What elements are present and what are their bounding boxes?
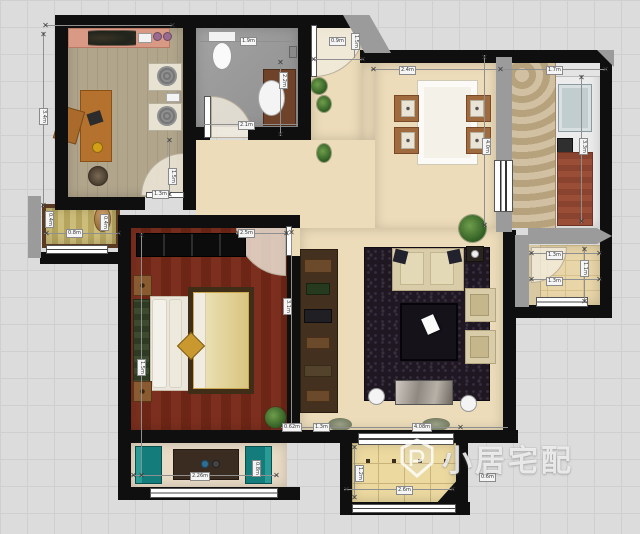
dimension-label: 3.1m [283, 298, 292, 315]
media-cabinet-item [304, 365, 332, 377]
dimension-tick-icon [137, 471, 146, 480]
dimension-tick-icon [580, 297, 589, 306]
living-balcony-window-bottom [352, 504, 456, 513]
dimension-label: 0.9m [329, 37, 346, 46]
wall-bedroom-top [118, 215, 300, 228]
dimension-tick-icon [129, 471, 138, 480]
kitchen-island-counter [557, 152, 593, 226]
dimension-label: 0.62m [282, 423, 302, 432]
dimension-line [141, 233, 142, 477]
dimension-label: 3.3m [579, 138, 588, 155]
tile-accent [366, 459, 370, 463]
wall-study-left [55, 15, 68, 210]
wall-study-bottom [55, 197, 145, 210]
dimension-line [529, 279, 601, 280]
dimension-label: 1.5m [137, 359, 146, 376]
dimension-label: 3.4m [39, 108, 48, 125]
dimension-label: 1.7m [546, 66, 563, 75]
dimension-tick-icon [272, 471, 281, 480]
dimension-label: 2.6m [396, 486, 413, 495]
dimension-tick-icon [42, 229, 51, 238]
shelf-plate [163, 32, 172, 41]
dining-chair-seat [470, 100, 484, 117]
dimension-label: 1.5m [168, 168, 177, 185]
wall-right-balcony-left [515, 235, 529, 307]
dimension-tick-icon [350, 493, 359, 502]
guest-chair-cushion [157, 66, 177, 86]
dimension-tick-icon [527, 249, 536, 258]
shelf-plate [153, 32, 162, 41]
armchair-cushion [470, 294, 489, 316]
floor-plan: 0.9m1.5m2.4m1.7m1.9m2.1m2.2m3.4m1.3m1.5m… [0, 0, 640, 534]
floor-pouf [368, 388, 385, 405]
dimension-label: 1.3m [546, 251, 563, 260]
wall-bedroom-right [287, 256, 300, 430]
dimension-label: 1.1m [580, 260, 589, 277]
dimension-label: 0.4m [45, 211, 54, 228]
bathroom-accessory [289, 46, 297, 58]
dimension-tick-icon [595, 249, 604, 258]
dimension-label: 2.5m [238, 229, 255, 238]
dimension-label: 4.0m [482, 138, 491, 155]
dimension-label: 4.08m [412, 423, 432, 432]
dimension-label: 1.3m [546, 277, 563, 286]
dimension-tick-icon [39, 30, 48, 39]
dimension-tick-icon [480, 53, 489, 62]
dimension-tick-icon [480, 221, 489, 230]
dimension-label: 1.3m [313, 423, 330, 432]
dimension-tick-icon [496, 65, 505, 74]
kitchen-sink [558, 84, 592, 132]
dining-chair-seat [401, 100, 415, 117]
dimension-line [313, 59, 364, 60]
media-cabinet-item [304, 259, 332, 273]
hallway-floor-2 [300, 215, 375, 228]
dimension-tick-icon [601, 65, 610, 74]
dimension-tick-icon [165, 136, 174, 145]
desk-lamp [92, 142, 103, 153]
wall-study-bath [183, 15, 196, 210]
side-table-lamp [471, 250, 479, 258]
balcony-cup [212, 460, 220, 468]
dining-plant [317, 96, 331, 112]
dimension-tick-icon [309, 55, 318, 64]
watermark-text: 小居宅配 [442, 436, 574, 480]
dimension-tick-icon [448, 485, 457, 494]
nightstand [133, 381, 152, 402]
wall-bath-right [298, 15, 311, 140]
dimension-tick-icon [41, 21, 50, 30]
tv-stand [395, 380, 453, 405]
armchair-cushion [470, 336, 489, 358]
dimension-tick-icon [456, 423, 465, 432]
shelf-plant-decor [88, 30, 136, 46]
dimension-tick-icon [580, 245, 589, 254]
kitchen-cabinets [512, 63, 556, 228]
bathroom-door [204, 96, 211, 138]
dimension-tick-icon [168, 21, 177, 30]
balcony-cup [201, 460, 209, 468]
hallway-floor [196, 140, 375, 215]
media-cabinet [300, 249, 338, 413]
wall-kitchen-balcony-arrow [528, 228, 612, 244]
dimension-label: 1.3m [152, 190, 169, 199]
dimension-label: 2.2m [279, 72, 288, 89]
dimension-label: 2.26m [190, 472, 210, 481]
dimension-tick-icon [137, 231, 146, 240]
dimension-tick-icon [595, 275, 604, 284]
dimension-tick-icon [342, 485, 351, 494]
dimension-tick-icon [39, 201, 48, 210]
side-tray [166, 93, 180, 102]
floor-pouf [460, 395, 477, 412]
dimension-tick-icon [276, 58, 285, 67]
dimension-label: 0.4m [100, 214, 109, 231]
entry-door [311, 25, 317, 77]
sofa-pillow [447, 249, 462, 264]
dimension-tick-icon [350, 443, 359, 452]
tile-accent [392, 459, 396, 463]
study-floor-lamp [88, 166, 108, 186]
wardrobe [136, 233, 246, 257]
kitchen-sliding-door [494, 160, 513, 212]
media-cabinet-item [306, 390, 330, 402]
dining-chair-seat [401, 132, 415, 149]
dimension-tick-icon [287, 228, 296, 237]
dimension-line [291, 230, 292, 428]
media-cabinet-item [304, 309, 332, 323]
dimension-tick-icon [369, 65, 378, 74]
media-cabinet-item [306, 337, 330, 349]
watermark-logo-icon [398, 438, 436, 478]
dimension-label: 2.4m [399, 66, 416, 75]
media-cabinet-item [306, 283, 330, 295]
bedroom-balcony-window [150, 488, 278, 498]
dimension-label: 1.2m [355, 465, 364, 482]
toilet-bowl [212, 42, 232, 70]
shelf-box [138, 33, 152, 43]
dimension-tick-icon [527, 275, 536, 284]
dimension-line [45, 25, 172, 26]
study-balcony-window [46, 245, 108, 254]
dimension-tick-icon [577, 217, 586, 226]
dimension-tick-icon [577, 73, 586, 82]
dining-plant [317, 144, 331, 162]
dimension-tick-icon [358, 55, 367, 64]
guest-chair-cushion [157, 106, 177, 126]
bed-pillow [152, 299, 167, 388]
dimension-tick-icon [276, 130, 285, 139]
dimension-line [169, 138, 170, 196]
dimension-label: 1.5m [351, 33, 360, 50]
dimension-tick-icon [114, 229, 123, 238]
entry-floor-2 [362, 63, 375, 140]
watermark: 小居宅配 [398, 436, 574, 480]
dimension-label: 0.8m [66, 229, 83, 238]
dimension-label: 1.9m [240, 37, 257, 46]
nightstand [133, 275, 152, 296]
dimension-label: 0.8m [252, 460, 261, 477]
dimension-line [529, 253, 601, 254]
entry-plant [311, 78, 327, 94]
dimension-label: 2.1m [238, 121, 255, 130]
